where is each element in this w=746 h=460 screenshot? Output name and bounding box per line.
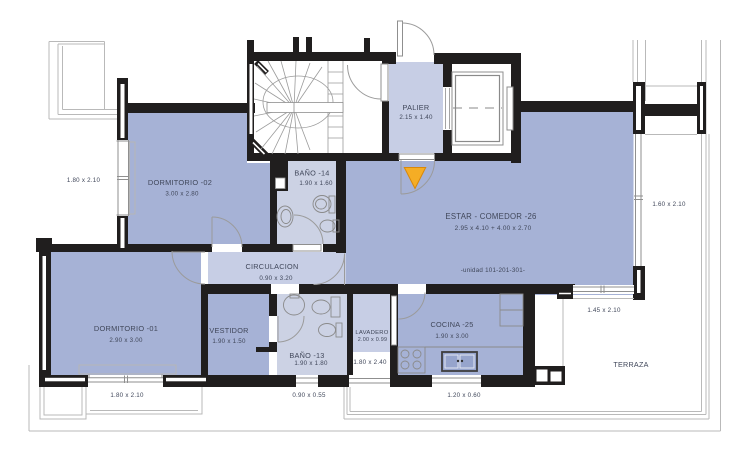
svg-text:1.20 x 0.60: 1.20 x 0.60 <box>447 392 481 399</box>
svg-text:BAÑO -13: BAÑO -13 <box>289 351 324 360</box>
svg-text:0.90 x 3.20: 0.90 x 3.20 <box>259 275 293 282</box>
svg-text:1.90 x 1.60: 1.90 x 1.60 <box>299 180 333 187</box>
svg-text:2.00 x 0.99: 2.00 x 0.99 <box>358 337 387 343</box>
svg-text:DORMITORIO -01: DORMITORIO -01 <box>94 324 158 333</box>
svg-text:ESTAR - COMEDOR -26: ESTAR - COMEDOR -26 <box>445 212 536 221</box>
svg-text:-unidad 101-201-301-: -unidad 101-201-301- <box>461 267 526 274</box>
svg-text:1.80 x 2.10: 1.80 x 2.10 <box>67 177 101 184</box>
svg-text:1.90 x 3.00: 1.90 x 3.00 <box>435 333 469 340</box>
svg-text:1.45 x 2.10: 1.45 x 2.10 <box>587 307 621 314</box>
svg-text:1.80 x 2.40: 1.80 x 2.40 <box>353 359 387 366</box>
svg-text:BAÑO -14: BAÑO -14 <box>294 169 329 178</box>
svg-text:DORMITORIO -02: DORMITORIO -02 <box>148 178 212 187</box>
svg-text:TERRAZA: TERRAZA <box>613 360 648 369</box>
svg-text:2.90 x 3.00: 2.90 x 3.00 <box>109 337 143 344</box>
svg-text:2.15 x 1.40: 2.15 x 1.40 <box>399 114 433 121</box>
svg-text:CIRCULACION: CIRCULACION <box>245 262 298 271</box>
svg-text:0.90 x 0.55: 0.90 x 0.55 <box>292 392 326 399</box>
svg-text:1.60 x 2.10: 1.60 x 2.10 <box>652 201 686 208</box>
svg-text:COCINA -25: COCINA -25 <box>430 320 473 329</box>
svg-text:1.90 x 1.80: 1.90 x 1.80 <box>294 360 328 367</box>
svg-text:1.80 x 2.10: 1.80 x 2.10 <box>110 392 144 399</box>
svg-text:2.95 x 4.10 + 4.00 x 2.70: 2.95 x 4.10 + 4.00 x 2.70 <box>455 225 532 232</box>
svg-text:3.00 x 2.80: 3.00 x 2.80 <box>165 191 199 198</box>
svg-text:1.90 x 1.50: 1.90 x 1.50 <box>212 338 246 345</box>
svg-text:VESTIDOR: VESTIDOR <box>209 326 248 335</box>
svg-text:LAVADERO: LAVADERO <box>355 330 388 336</box>
svg-text:PALIER: PALIER <box>403 103 430 112</box>
